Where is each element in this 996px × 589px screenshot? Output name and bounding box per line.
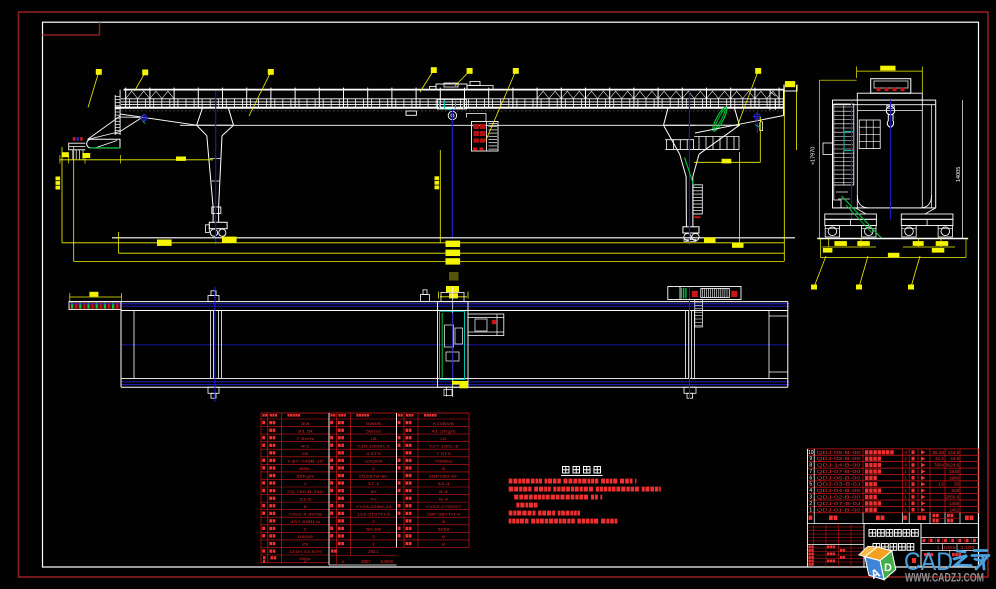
svg-text:2050.6: 2050.6 [945, 495, 959, 500]
svg-text:32.2: 32.2 [935, 456, 944, 461]
svg-text:WWW.CADZJ.COM: WWW.CADZJ.COM [905, 571, 984, 585]
svg-text:36Kg/s: 36Kg/s [296, 474, 314, 479]
svg-text:D5099: D5099 [298, 534, 314, 539]
svg-text:2: 2 [904, 456, 907, 461]
svg-text:1452: 1452 [949, 507, 960, 512]
svg-text:7.5m/s: 7.5m/s [296, 436, 314, 441]
svg-text:1: 1 [904, 501, 907, 506]
svg-text:YY03-225M-43: YY03-225M-43 [356, 504, 393, 509]
svg-text:M5: M5 [302, 451, 309, 456]
svg-text:1: 1 [809, 507, 812, 513]
svg-text:6H: 6H [371, 489, 377, 494]
svg-text:7.87-745B-10: 7.87-745B-10 [287, 459, 324, 464]
svg-text:QDJ-02-B-00: QDJ-02-B-00 [817, 495, 861, 501]
svg-text:QDJ-04-B-00: QDJ-04-B-00 [817, 488, 861, 494]
svg-text:≈17970: ≈17970 [811, 147, 817, 165]
svg-text:D: D [884, 562, 892, 574]
svg-text:QDJ-07-B-0J: QDJ-07-B-0J [817, 501, 862, 507]
svg-text:41.2Kg/s: 41.2Kg/s [432, 428, 456, 433]
svg-text:8: 8 [809, 463, 812, 469]
svg-text:5: 5 [809, 482, 812, 488]
svg-text:QDJ-06-B-00: QDJ-06-B-00 [817, 475, 861, 481]
svg-text:9: 9 [809, 456, 812, 462]
svg-text:QDJ-05-B-00: QDJ-05-B-00 [817, 450, 861, 456]
svg-text:8-4: 8-4 [439, 489, 449, 494]
svg-text:37.1: 37.1 [368, 481, 381, 486]
svg-text:1465: 1465 [949, 501, 960, 506]
svg-text:7804: 7804 [934, 463, 945, 468]
svg-text:30t: 30t [301, 421, 311, 426]
svg-text:528: 528 [952, 488, 960, 493]
svg-text:1: 1 [904, 475, 907, 480]
svg-text:/VD2-4.8V08: /VD2-4.8V08 [289, 511, 323, 516]
svg-text:115-315TH-9: 115-315TH-9 [357, 511, 391, 516]
svg-text:29: 29 [302, 542, 309, 547]
svg-text:5.8KW: 5.8KW [381, 559, 394, 564]
svg-text:14005: 14005 [956, 167, 962, 182]
svg-text:QDJ-07-B-00: QDJ-07-B-00 [817, 469, 861, 475]
svg-text:85t.: 85t. [299, 466, 311, 471]
svg-text:JZ4H-33-57H: JZ4H-33-57H [289, 549, 322, 554]
svg-text:U2: U2 [441, 436, 448, 441]
svg-text:1: 1 [904, 488, 907, 493]
svg-text:5268: 5268 [438, 527, 451, 532]
svg-text:292.1: 292.1 [368, 549, 379, 554]
svg-text:55.48: 55.48 [933, 450, 945, 455]
svg-text:FH: FH [371, 496, 377, 501]
svg-text:2: 2 [904, 482, 907, 487]
svg-text:31.5t: 31.5t [298, 428, 314, 433]
svg-text:700B/s: 700B/s [435, 459, 453, 464]
svg-text:4/1: 4/1 [301, 443, 311, 448]
svg-text:7: 7 [809, 469, 812, 475]
svg-text:50m/s: 50m/s [366, 428, 381, 433]
svg-text:2: 2 [809, 501, 812, 507]
svg-text:43.4: 43.4 [438, 481, 451, 486]
svg-text:3: 3 [809, 495, 812, 501]
svg-text:YZR-160M1-6: YZR-160M1-6 [357, 443, 391, 448]
svg-text:1: 1 [904, 469, 907, 474]
svg-text:4: 4 [809, 488, 812, 494]
svg-text:YZ7-160L-8: YZ7-160L-8 [429, 443, 460, 448]
svg-text:4: 4 [904, 450, 907, 455]
svg-text:50.68: 50.68 [366, 527, 382, 532]
svg-text:GZQ600: GZQ600 [365, 459, 384, 464]
svg-text:QDJ-03-B-0J: QDJ-03-B-0J [817, 482, 862, 488]
svg-text:144.8: 144.8 [948, 450, 960, 455]
svg-text:1: 1 [904, 495, 907, 500]
svg-text:2Q-780-B-35A: 2Q-780-B-35A [287, 489, 323, 494]
svg-text:8: 8 [304, 560, 306, 564]
svg-text:1540: 1540 [949, 469, 960, 474]
svg-text:4: 4 [904, 463, 907, 468]
svg-text:7.5TS: 7.5TS [436, 451, 451, 456]
svg-text:L5: L5 [939, 482, 945, 487]
svg-text:50: 50 [954, 482, 960, 487]
svg-text:K13B4/B: K13B4/B [433, 421, 454, 426]
svg-text:4S7-63BL/s: 4S7-63BL/s [290, 519, 320, 524]
svg-text:B-4: B-4 [439, 496, 449, 501]
svg-text:25Z878-8/-: 25Z878-8/- [359, 474, 390, 479]
svg-text:1980: 1980 [949, 475, 960, 480]
svg-text:6: 6 [809, 475, 812, 481]
svg-text:QDJ-01-B-00: QDJ-01-B-00 [817, 507, 861, 513]
svg-text:3024.6: 3024.6 [945, 463, 959, 468]
svg-text:50M/B: 50M/B [366, 421, 381, 426]
svg-text:31.5: 31.5 [299, 496, 312, 501]
svg-text:QDJ-03-B-00: QDJ-03-B-00 [817, 456, 861, 462]
svg-text:380V: 380V [361, 559, 371, 564]
svg-text:1: 1 [904, 507, 907, 512]
svg-text:25F780-8/-: 25F780-8/- [429, 474, 460, 479]
svg-text:4.5TS: 4.5TS [366, 451, 381, 456]
svg-text:10: 10 [808, 450, 814, 456]
svg-text:28P-387TH-4: 28P-387TH-4 [427, 511, 461, 516]
svg-text:1:100: 1:100 [961, 545, 976, 550]
svg-text:U8: U8 [371, 436, 378, 441]
svg-text:YVZZ-275S/07: YVZZ-275S/07 [426, 504, 463, 509]
svg-text:44.8: 44.8 [950, 456, 959, 461]
svg-text:QDJ-14-B-00: QDJ-14-B-00 [817, 463, 861, 469]
